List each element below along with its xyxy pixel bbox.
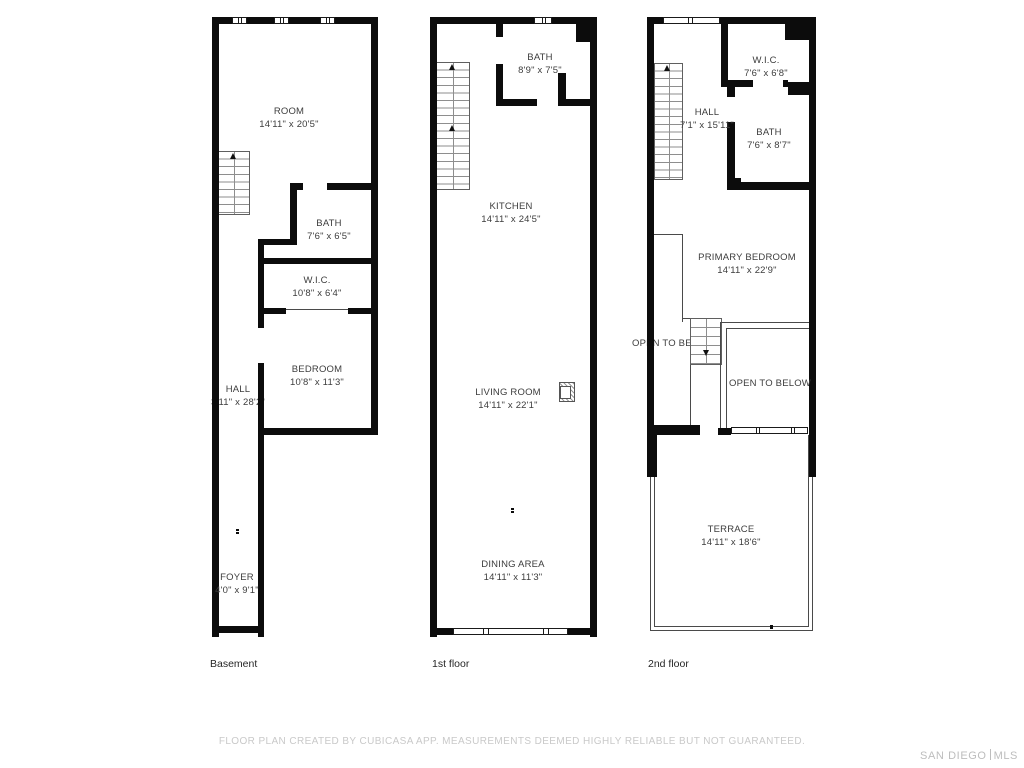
room-name: FOYER	[215, 571, 259, 584]
wall	[212, 17, 219, 637]
room-name: ROOM	[259, 105, 318, 118]
thin-line	[654, 234, 683, 235]
fireplace-symbol	[559, 382, 575, 402]
wall	[258, 308, 286, 314]
room-dims: 14'11" x 18'6"	[701, 536, 760, 549]
window-mullion	[692, 18, 693, 23]
window-mullion	[759, 428, 760, 433]
wall	[647, 430, 657, 477]
room-dims: 10'8" x 6'4"	[292, 287, 341, 300]
room-label: TERRACE 14'11" x 18'6"	[701, 523, 760, 549]
floor-plan-page: { "floors": [ { "id": "basement", "capti…	[0, 0, 1024, 768]
room-name: KITCHEN	[481, 200, 540, 213]
wall	[809, 17, 816, 477]
door-tick	[236, 529, 239, 531]
room-label: PRIMARY BEDROOM 14'11" x 22'9"	[698, 251, 796, 277]
wall	[430, 17, 597, 24]
room-dims: 14'11" x 24'5"	[481, 213, 540, 226]
wall	[371, 17, 378, 435]
door-tick	[511, 511, 514, 513]
wall	[727, 87, 735, 97]
window-mullion	[791, 428, 792, 433]
room-label: BEDROOM 10'8" x 11'3"	[290, 363, 344, 389]
wall	[327, 183, 371, 190]
wall	[258, 428, 378, 435]
floor-caption: Basement	[210, 658, 257, 670]
floorplan-second-floor: W.I.C. 7'6" x 6'8" HALL 7'1" x 15'11" BA…	[647, 17, 816, 637]
wall	[721, 17, 728, 87]
room-name: DINING AREA	[481, 558, 544, 571]
floorplan-basement: ROOM 14'11" x 20'5" BATH 7'6" x 6'5" W.I…	[212, 17, 378, 637]
window-symbol	[663, 17, 720, 24]
up-arrow-icon	[449, 64, 455, 70]
room-name: BEDROOM	[290, 363, 344, 376]
wall	[727, 182, 809, 190]
room-label: ROOM 14'11" x 20'5"	[259, 105, 318, 131]
staircase	[654, 63, 683, 180]
thin-line	[682, 318, 690, 319]
wall	[721, 80, 753, 87]
wall	[258, 363, 264, 637]
room-dims: 7'1" x 15'11"	[680, 119, 734, 132]
window-mullion	[542, 18, 543, 23]
wall	[430, 17, 437, 637]
window-symbol	[274, 17, 289, 24]
logo-text-right: MLS	[994, 750, 1018, 762]
wall	[258, 258, 371, 264]
window-symbol	[232, 17, 247, 24]
fireplace-inner	[560, 386, 571, 399]
window-mullion	[483, 629, 484, 634]
wall	[496, 17, 503, 37]
up-arrow-icon	[664, 65, 670, 71]
wall	[788, 82, 810, 95]
wall	[290, 183, 297, 245]
wall	[785, 17, 816, 40]
thin-line	[720, 322, 813, 323]
floor-caption: 2nd floor	[648, 658, 689, 670]
stair-centerline	[706, 319, 707, 364]
wall	[558, 73, 566, 106]
door-tick	[770, 625, 773, 629]
window-mullion	[283, 18, 284, 23]
sandiego-mls-logo: SAN DIEGOMLS	[920, 749, 1018, 762]
thin-line	[286, 309, 348, 310]
thin-line	[720, 322, 721, 430]
room-label: BATH 8'9" x 7'5"	[518, 51, 562, 77]
window-mullion	[488, 629, 489, 634]
room-label: W.I.C. 7'6" x 6'8"	[744, 54, 788, 80]
window-mullion	[688, 18, 689, 23]
floor-caption: 1st floor	[432, 658, 469, 670]
window-mullion	[329, 18, 330, 23]
room-label: HALL 7'1" x 15'11"	[680, 106, 734, 132]
wall	[718, 428, 731, 435]
window-mullion	[238, 18, 239, 23]
door-tick	[236, 532, 239, 534]
up-arrow-icon	[230, 153, 236, 159]
window-mullion	[280, 18, 281, 23]
room-dims: 4'0" x 9'1"	[215, 584, 259, 597]
wall	[212, 626, 264, 633]
window-symbol	[731, 427, 808, 434]
room-name: W.I.C.	[744, 54, 788, 67]
window-symbol	[453, 628, 568, 635]
staircase	[218, 151, 250, 215]
wall	[496, 99, 537, 106]
staircase-lower	[690, 318, 722, 365]
room-dims: 14'11" x 22'9"	[698, 264, 796, 277]
window-mullion	[756, 428, 757, 433]
room-dims: 14'11" x 11'3"	[481, 571, 544, 584]
terrace-line	[650, 630, 813, 631]
room-label: BATH 7'6" x 6'5"	[307, 217, 351, 243]
room-label: OPEN TO BELOW	[729, 377, 811, 390]
window-symbol	[320, 17, 335, 24]
window-mullion	[543, 629, 544, 634]
room-name: HALL	[680, 106, 734, 119]
room-name: TERRACE	[701, 523, 760, 536]
stair-centerline	[669, 64, 670, 179]
wall	[576, 24, 593, 42]
wall	[348, 308, 371, 314]
room-label: HALL 3'11" x 28'2"	[211, 383, 265, 409]
thin-line	[682, 234, 683, 322]
room-dims: 7'6" x 6'8"	[744, 67, 788, 80]
wall	[647, 17, 654, 477]
thin-line	[726, 328, 727, 430]
wall	[290, 183, 303, 190]
room-name: OPEN TO BELOW	[729, 377, 811, 390]
room-label: W.I.C. 10'8" x 6'4"	[292, 274, 341, 300]
wall	[258, 239, 264, 328]
room-name: HALL	[211, 383, 265, 396]
room-name: LIVING ROOM	[475, 386, 541, 399]
room-dims: 7'6" x 6'5"	[307, 230, 351, 243]
room-label: BATH 7'6" x 8'7"	[747, 126, 791, 152]
wall	[809, 430, 816, 477]
door-tick	[511, 508, 514, 510]
stair-centerline	[234, 152, 235, 214]
room-dims: 14'11" x 20'5"	[259, 118, 318, 131]
room-name: BATH	[747, 126, 791, 139]
room-label: LIVING ROOM 14'11" x 22'1"	[475, 386, 541, 412]
room-name: BATH	[518, 51, 562, 64]
room-dims: 14'11" x 22'1"	[475, 399, 541, 412]
room-dims: 7'6" x 8'7"	[747, 139, 791, 152]
disclaimer-text: FLOOR PLAN CREATED BY CUBICASA APP. MEAS…	[0, 736, 1024, 747]
room-dims: 10'8" x 11'3"	[290, 376, 344, 389]
terrace-line	[654, 626, 809, 627]
room-dims: 3'11" x 28'2"	[211, 396, 265, 409]
floorplan-first-floor: BATH 8'9" x 7'5" KITCHEN 14'11" x 24'5" …	[430, 17, 597, 637]
window-mullion	[545, 18, 546, 23]
room-label: KITCHEN 14'11" x 24'5"	[481, 200, 540, 226]
room-name: BATH	[307, 217, 351, 230]
window-mullion	[548, 629, 549, 634]
room-dims: 8'9" x 7'5"	[518, 64, 562, 77]
thin-line	[726, 328, 809, 329]
room-label: DINING AREA 14'11" x 11'3"	[481, 558, 544, 584]
room-name: W.I.C.	[292, 274, 341, 287]
logo-divider	[990, 749, 991, 760]
room-name: PRIMARY BEDROOM	[698, 251, 796, 264]
wall	[590, 17, 597, 637]
window-mullion	[326, 18, 327, 23]
logo-text-left: SAN DIEGO	[920, 750, 987, 762]
down-arrow-icon	[703, 350, 709, 356]
window-mullion	[794, 428, 795, 433]
up-arrow-icon	[449, 125, 455, 131]
room-label: FOYER 4'0" x 9'1"	[215, 571, 259, 597]
window-mullion	[241, 18, 242, 23]
window-symbol	[534, 17, 552, 24]
